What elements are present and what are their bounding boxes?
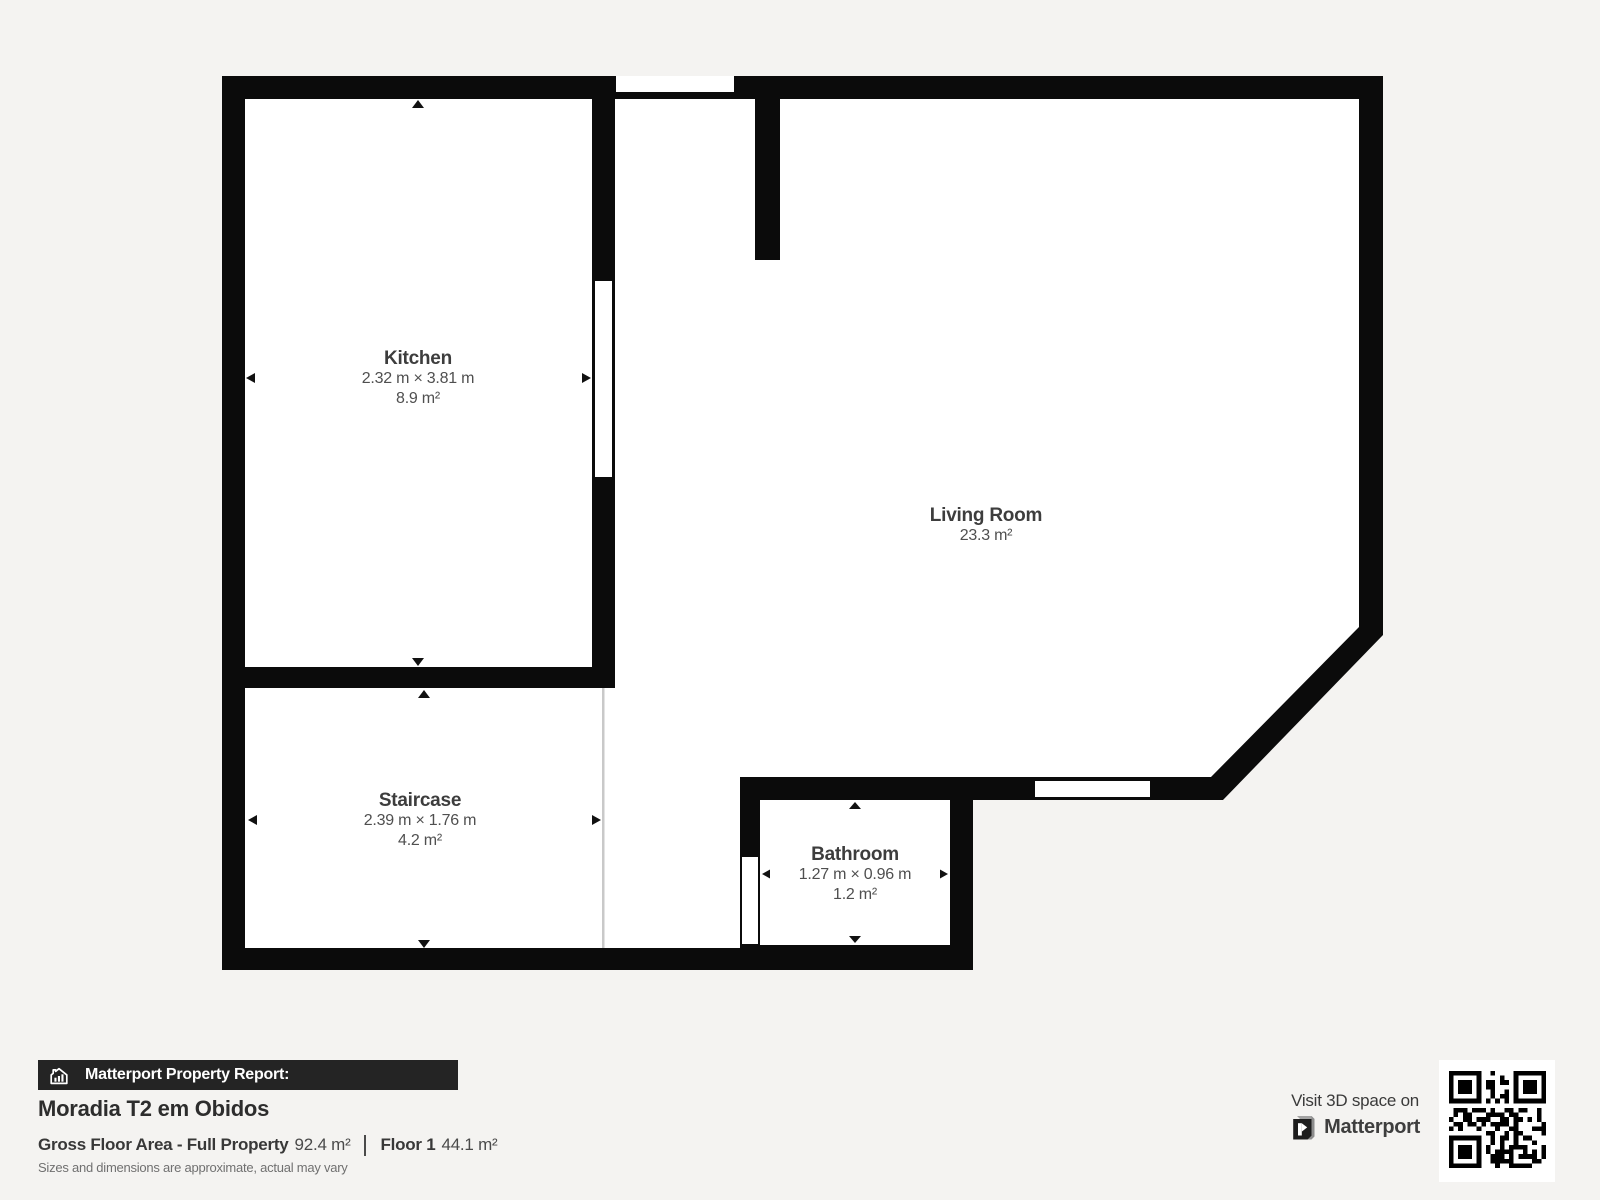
report-header-bar: Matterport Property Report:: [38, 1060, 458, 1090]
page: { "page": { "background": "#f4f3f1" }, "…: [0, 0, 1600, 1200]
corridor-floor: [604, 99, 755, 948]
matterport-logo: Matterport: [1290, 1113, 1420, 1141]
living-room-floor: [755, 99, 1359, 777]
gross-floor-area-label: Gross Floor Area - Full Property: [38, 1135, 289, 1155]
visit-3d-label: Visit 3D space on: [1291, 1091, 1419, 1111]
floor-value: 44.1 m²: [441, 1135, 497, 1155]
floor-area-stats: Gross Floor Area - Full Property 92.4 m²…: [38, 1133, 497, 1157]
disclaimer-text: Sizes and dimensions are approximate, ac…: [38, 1160, 348, 1175]
matterport-m-icon: [1290, 1115, 1315, 1140]
kitchen-floor: [245, 99, 592, 667]
bathroom-door-opening: [742, 857, 758, 944]
qr-code-pattern: [1449, 1071, 1546, 1168]
floor-label: Floor 1: [380, 1135, 435, 1155]
house-chart-icon: [49, 1066, 69, 1085]
living-room-window: [1035, 781, 1150, 797]
gross-floor-area-value: 92.4 m²: [295, 1135, 351, 1155]
report-bar-label: Matterport Property Report:: [85, 1066, 289, 1084]
staircase-floor: [245, 688, 603, 948]
staircase-divider-line: [602, 688, 605, 948]
floor-plan: [0, 0, 1600, 1200]
bathroom-floor: [760, 800, 950, 945]
kitchen-window: [595, 281, 612, 477]
qr-code: [1439, 1060, 1555, 1182]
property-title: Moradia T2 em Obidos: [38, 1096, 269, 1122]
matterport-wordmark: Matterport: [1324, 1116, 1420, 1139]
entry-door-opening: [616, 76, 734, 92]
stats-separator: [364, 1135, 366, 1156]
